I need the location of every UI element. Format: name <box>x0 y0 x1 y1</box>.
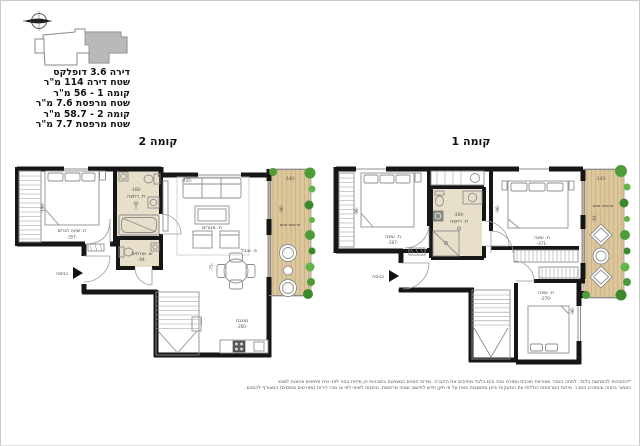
dim-label: -75- <box>209 262 214 271</box>
dim-label: -415- <box>182 178 193 183</box>
dim-label: -357- <box>67 235 78 240</box>
bed <box>508 181 568 228</box>
floor1-title: קומה 1 <box>333 135 609 148</box>
master-bedroom-furniture <box>19 171 106 251</box>
floor-plan-1: ח. שינה -267- -90- -204- ת. רחצה <box>333 151 639 378</box>
dim-label: -371- <box>537 241 548 246</box>
room-label: ח. שינה הורים <box>58 229 87 234</box>
entry-label: כניסה <box>56 272 68 277</box>
tv-cabinet <box>163 181 168 231</box>
living-room-furniture <box>163 177 249 255</box>
key-plan <box>31 27 131 67</box>
dim-label: -267- <box>388 240 399 245</box>
washing-machine <box>433 211 443 221</box>
entry-arrow-icon <box>73 267 83 279</box>
bedroom1-furniture <box>339 173 425 255</box>
dim-label: -91- <box>592 213 597 222</box>
dim-label: -260- <box>237 324 248 329</box>
balcony-deck <box>269 169 311 296</box>
dim-label: -140- <box>285 176 296 181</box>
floor-plan-2: ח. שינה הורים -357- -190- -168- ת. רחצה … <box>15 159 322 377</box>
bedroom2-furniture <box>502 181 574 228</box>
dim-label: -143- <box>596 176 607 181</box>
armchair <box>193 231 212 248</box>
key-plan-unit-highlight <box>85 32 127 63</box>
side-table <box>284 266 293 275</box>
floor2-title: קומה 2 <box>15 135 301 148</box>
disclaimer-line: כאמור בחוזה ובמפרט המכר. מידות המרפסות כ… <box>237 386 631 392</box>
info-line: שטח מרפסת 7.7 מ"ר <box>1 120 130 130</box>
room-label: ת. רחצה <box>127 195 145 200</box>
stairs <box>472 290 510 359</box>
dim-label: -90- <box>354 206 359 215</box>
entry-marker <box>389 270 399 282</box>
dim-label: -90- <box>570 306 575 315</box>
bed <box>528 306 569 353</box>
dining-table <box>224 259 248 283</box>
bed <box>45 171 99 225</box>
balcony-furniture <box>590 224 612 288</box>
room-label: ת. רחצה <box>450 220 468 225</box>
dim-label: -204- <box>454 212 465 217</box>
apartment-info: דירה 3.6 דופלקס שטח דירה 114 מ"ר קומה 1 … <box>1 68 130 130</box>
dim-label: -190- <box>40 202 45 213</box>
duct-strip <box>431 171 484 185</box>
armchair <box>220 231 239 248</box>
bed <box>361 173 414 227</box>
room-label: פ. אוכל <box>241 248 257 254</box>
page: דירה 3.6 דופלקס שטח דירה 114 מ"ר קומה 1 … <box>0 0 640 446</box>
room-label: מרפסת שמש <box>593 204 614 208</box>
round-table <box>593 248 609 264</box>
dim-label: -168- <box>131 187 142 192</box>
dining-furniture <box>217 253 255 289</box>
disclaimer: *התוכניות להמחשה בלבד. לחוזה המכר מצורפת… <box>237 380 631 393</box>
dim-label: -90- <box>279 204 284 213</box>
lounge-chair <box>280 280 297 297</box>
stove <box>233 341 245 352</box>
bedroom3-furniture <box>528 306 569 353</box>
room-label: מרפסת שמש <box>280 223 301 227</box>
room-label: ח. מגורים <box>202 226 222 231</box>
dim-label: -94- <box>138 257 147 262</box>
dim-label: -270- <box>541 296 552 301</box>
entry-label: כניסה <box>372 275 384 280</box>
kitchen-furniture <box>192 317 268 353</box>
entry-arrow-icon <box>389 270 399 282</box>
entry-marker <box>73 267 83 279</box>
corridor-closets <box>514 250 578 278</box>
dim-label: -90- <box>495 204 500 213</box>
